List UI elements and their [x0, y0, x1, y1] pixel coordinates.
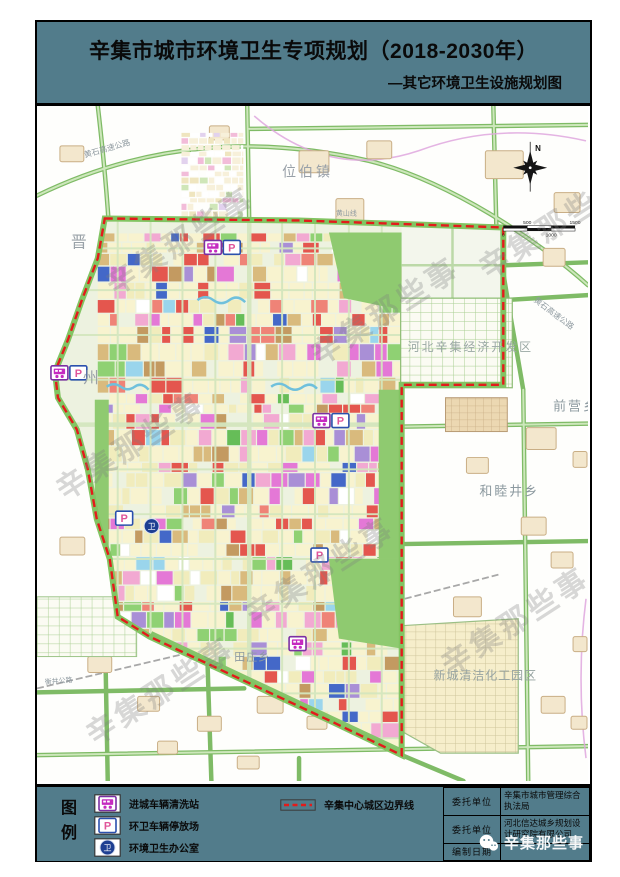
- title-band: 辛集市城市环境卫生专项规划（2018-2030年） —其它环境卫生设施规划图: [37, 22, 590, 106]
- map-canvas: P 卫: [37, 106, 588, 781]
- wechat-watermark-text: 辛集那些事: [504, 832, 584, 853]
- parking-lot-marker: [332, 414, 349, 428]
- svg-text:500: 500: [523, 220, 532, 226]
- wechat-icon: [478, 834, 500, 852]
- label-qianying: 前营乡: [553, 399, 588, 414]
- page-subtitle: —其它环境卫生设施规划图: [37, 72, 590, 93]
- label-dev-zone: 河北辛集经济开发区: [408, 339, 533, 354]
- page-title: 辛集市城市环境卫生专项规划（2018-2030年）: [37, 22, 590, 65]
- label-jinzhou-1: 晋: [71, 233, 87, 251]
- legend-band: 图例 进城车辆清洗站 环卫车辆停放场: [37, 784, 590, 861]
- truck-wash-station-marker: [51, 366, 68, 380]
- qianying-village-grid: [446, 398, 508, 432]
- sanitation-office-icon: [94, 838, 121, 857]
- table-value: 辛集市城市管理综合执法局: [501, 788, 590, 816]
- label-weibo-town: 位伯镇: [282, 164, 333, 180]
- compass-north-label: N: [535, 144, 541, 153]
- legend-label: 环境卫生办公室: [129, 840, 199, 855]
- planning-map: P 卫: [37, 106, 590, 784]
- legend-label: 进城车辆清洗站: [129, 796, 199, 811]
- legend-item-boundary: 辛集中心城区边界线: [280, 797, 414, 812]
- boundary-line-icon: [280, 799, 316, 811]
- legend-item-parking: 环卫车辆停放场: [94, 814, 199, 836]
- svg-text:1500: 1500: [570, 220, 581, 226]
- legend-items: 进城车辆清洗站 环卫车辆停放场 环境卫生办公室: [94, 792, 199, 858]
- plan-sheet: 辛集市城市环境卫生专项规划（2018-2030年） —其它环境卫生设施规划图: [35, 20, 592, 862]
- label-jinzhou-2: 州: [83, 370, 99, 387]
- label-huangshan-road: 黄山线: [336, 209, 357, 218]
- legend-label: 辛集中心城区边界线: [324, 797, 414, 812]
- svg-text:1000: 1000: [546, 232, 557, 238]
- chemical-park-grid: [402, 619, 519, 753]
- legend-title: 图例: [61, 796, 81, 846]
- table-key: 委托单位: [444, 788, 501, 816]
- legend-item-office: 环境卫生办公室: [94, 836, 199, 858]
- parking-lot-marker: [223, 240, 240, 254]
- sanitation-office-marker: [144, 519, 159, 534]
- label-chem-park: 新城清洁化工园区: [434, 667, 538, 682]
- wechat-watermark: 辛集那些事: [478, 832, 584, 853]
- table-row: 委托单位 辛集市城市管理综合执法局: [444, 788, 590, 816]
- truck-wash-station-icon: [94, 794, 121, 813]
- parking-lot-icon: [94, 816, 121, 835]
- parking-lot-marker: [116, 511, 133, 525]
- legend-label: 环卫车辆停放场: [129, 818, 199, 833]
- truck-wash-station-marker: [204, 240, 221, 254]
- truck-wash-station-marker: [289, 637, 306, 651]
- truck-wash-station-marker: [313, 414, 330, 428]
- label-tianzhuang: 田庄乡: [234, 650, 270, 664]
- legend-item-truck-wash: 进城车辆清洗站: [94, 792, 199, 814]
- svg-text:0: 0: [502, 232, 505, 238]
- parking-lot-marker: [311, 548, 328, 562]
- label-hemujing: 和睦井乡: [479, 483, 539, 498]
